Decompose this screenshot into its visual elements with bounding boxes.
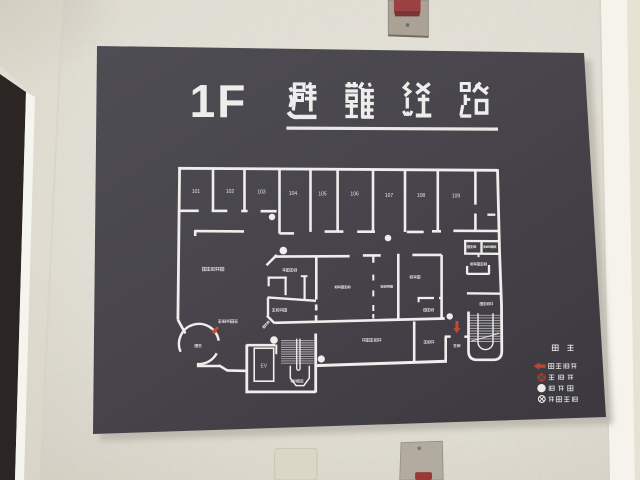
svg-text:109: 109: [452, 193, 461, 199]
svg-text:1F: 1F: [190, 75, 248, 127]
svg-text:107: 107: [385, 193, 394, 199]
svg-text:104: 104: [289, 191, 298, 197]
svg-text:101: 101: [192, 189, 201, 195]
svg-text:103: 103: [257, 190, 266, 196]
svg-text:EV: EV: [260, 363, 267, 369]
svg-text:102: 102: [226, 189, 235, 195]
svg-text:105: 105: [318, 191, 327, 197]
svg-text:106: 106: [350, 192, 359, 198]
svg-text:108: 108: [417, 193, 426, 199]
